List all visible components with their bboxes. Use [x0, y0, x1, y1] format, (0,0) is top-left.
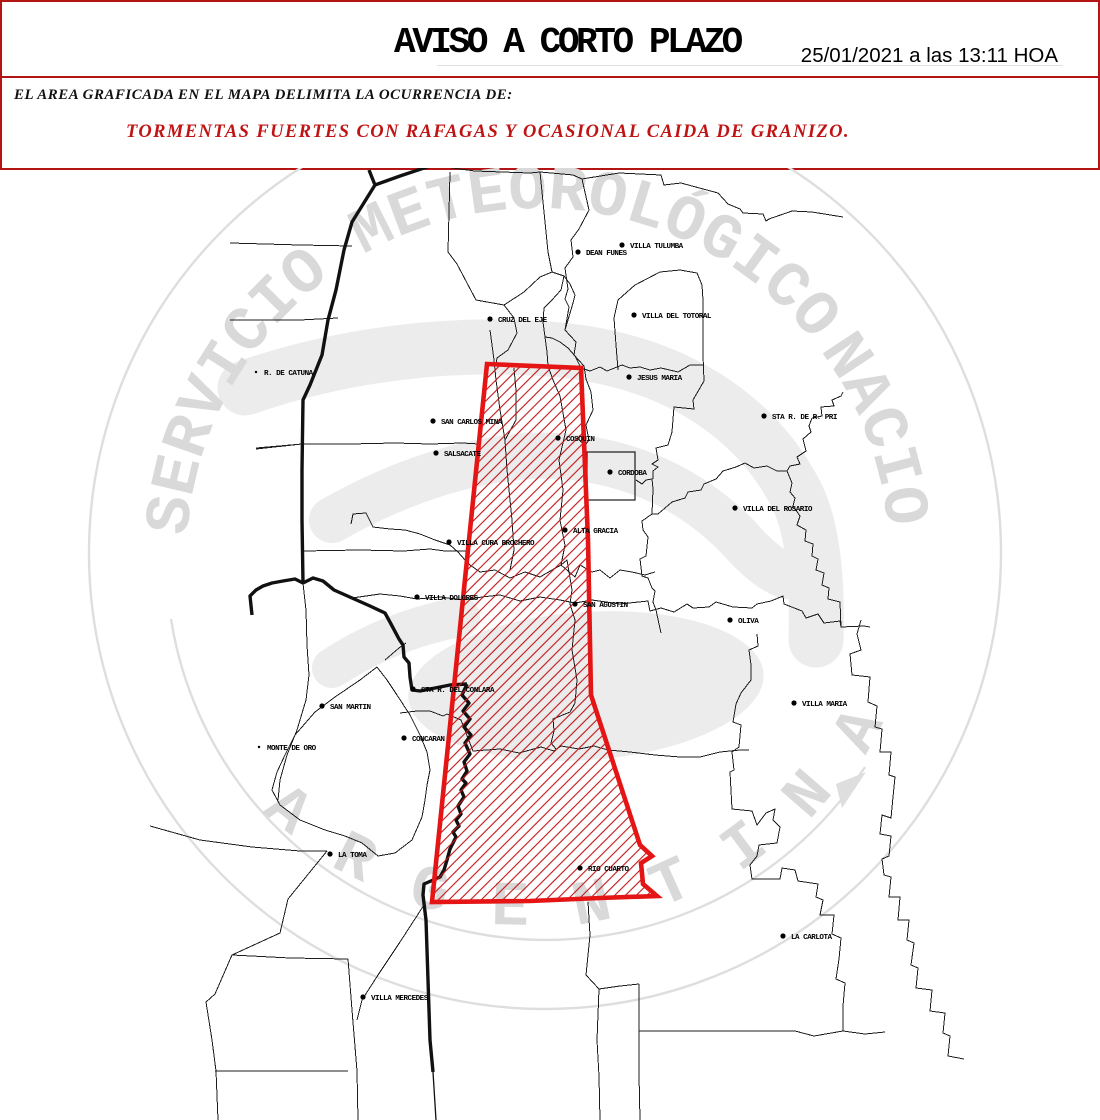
svg-text:OLIVA: OLIVA — [738, 618, 759, 626]
svg-text:VILLA DOLORES: VILLA DOLORES — [425, 595, 479, 603]
svg-text:ALTA GRACIA: ALTA GRACIA — [573, 528, 619, 536]
svg-text:DEAN FUNES: DEAN FUNES — [586, 250, 628, 258]
svg-text:SAN MARTIN: SAN MARTIN — [330, 704, 372, 712]
svg-text:SAN CARLOS MINA: SAN CARLOS MINA — [441, 419, 503, 427]
svg-text:CRUZ DEL EJE: CRUZ DEL EJE — [498, 317, 548, 325]
svg-text:STA R. DEL CONLARA: STA R. DEL CONLARA — [421, 687, 495, 695]
svg-text:VILLA MARIA: VILLA MARIA — [802, 701, 848, 709]
svg-text:MONTE DE ORO: MONTE DE ORO — [267, 745, 317, 753]
svg-text:SAN AGUSTIN: SAN AGUSTIN — [583, 602, 629, 610]
svg-text:SALSACATE: SALSACATE — [444, 451, 481, 459]
svg-text:RIO CUARTO: RIO CUARTO — [588, 866, 630, 874]
svg-text:R. DE CATUNA: R. DE CATUNA — [264, 370, 314, 378]
svg-text:VILLA CURA BROCHERO: VILLA CURA BROCHERO — [457, 540, 535, 548]
svg-text:JESUS MARIA: JESUS MARIA — [637, 375, 683, 383]
svg-text:CORDOBA: CORDOBA — [618, 470, 647, 478]
svg-text:VILLA DEL ROSARIO: VILLA DEL ROSARIO — [743, 506, 813, 514]
svg-text:LA CARLOTA: LA CARLOTA — [791, 934, 833, 942]
svg-text:VILLA DEL TOTORAL: VILLA DEL TOTORAL — [642, 313, 712, 321]
svg-text:VILLA TULUMBA: VILLA TULUMBA — [630, 243, 684, 251]
svg-text:CONCARAN: CONCARAN — [412, 736, 445, 744]
svg-text:VILLA MERCEDES: VILLA MERCEDES — [371, 995, 429, 1003]
svg-text:COSQUIN: COSQUIN — [566, 436, 595, 444]
svg-text:STA R. DE R. PRI: STA R. DE R. PRI — [772, 414, 837, 422]
svg-text:LA TOMA: LA TOMA — [338, 852, 367, 860]
